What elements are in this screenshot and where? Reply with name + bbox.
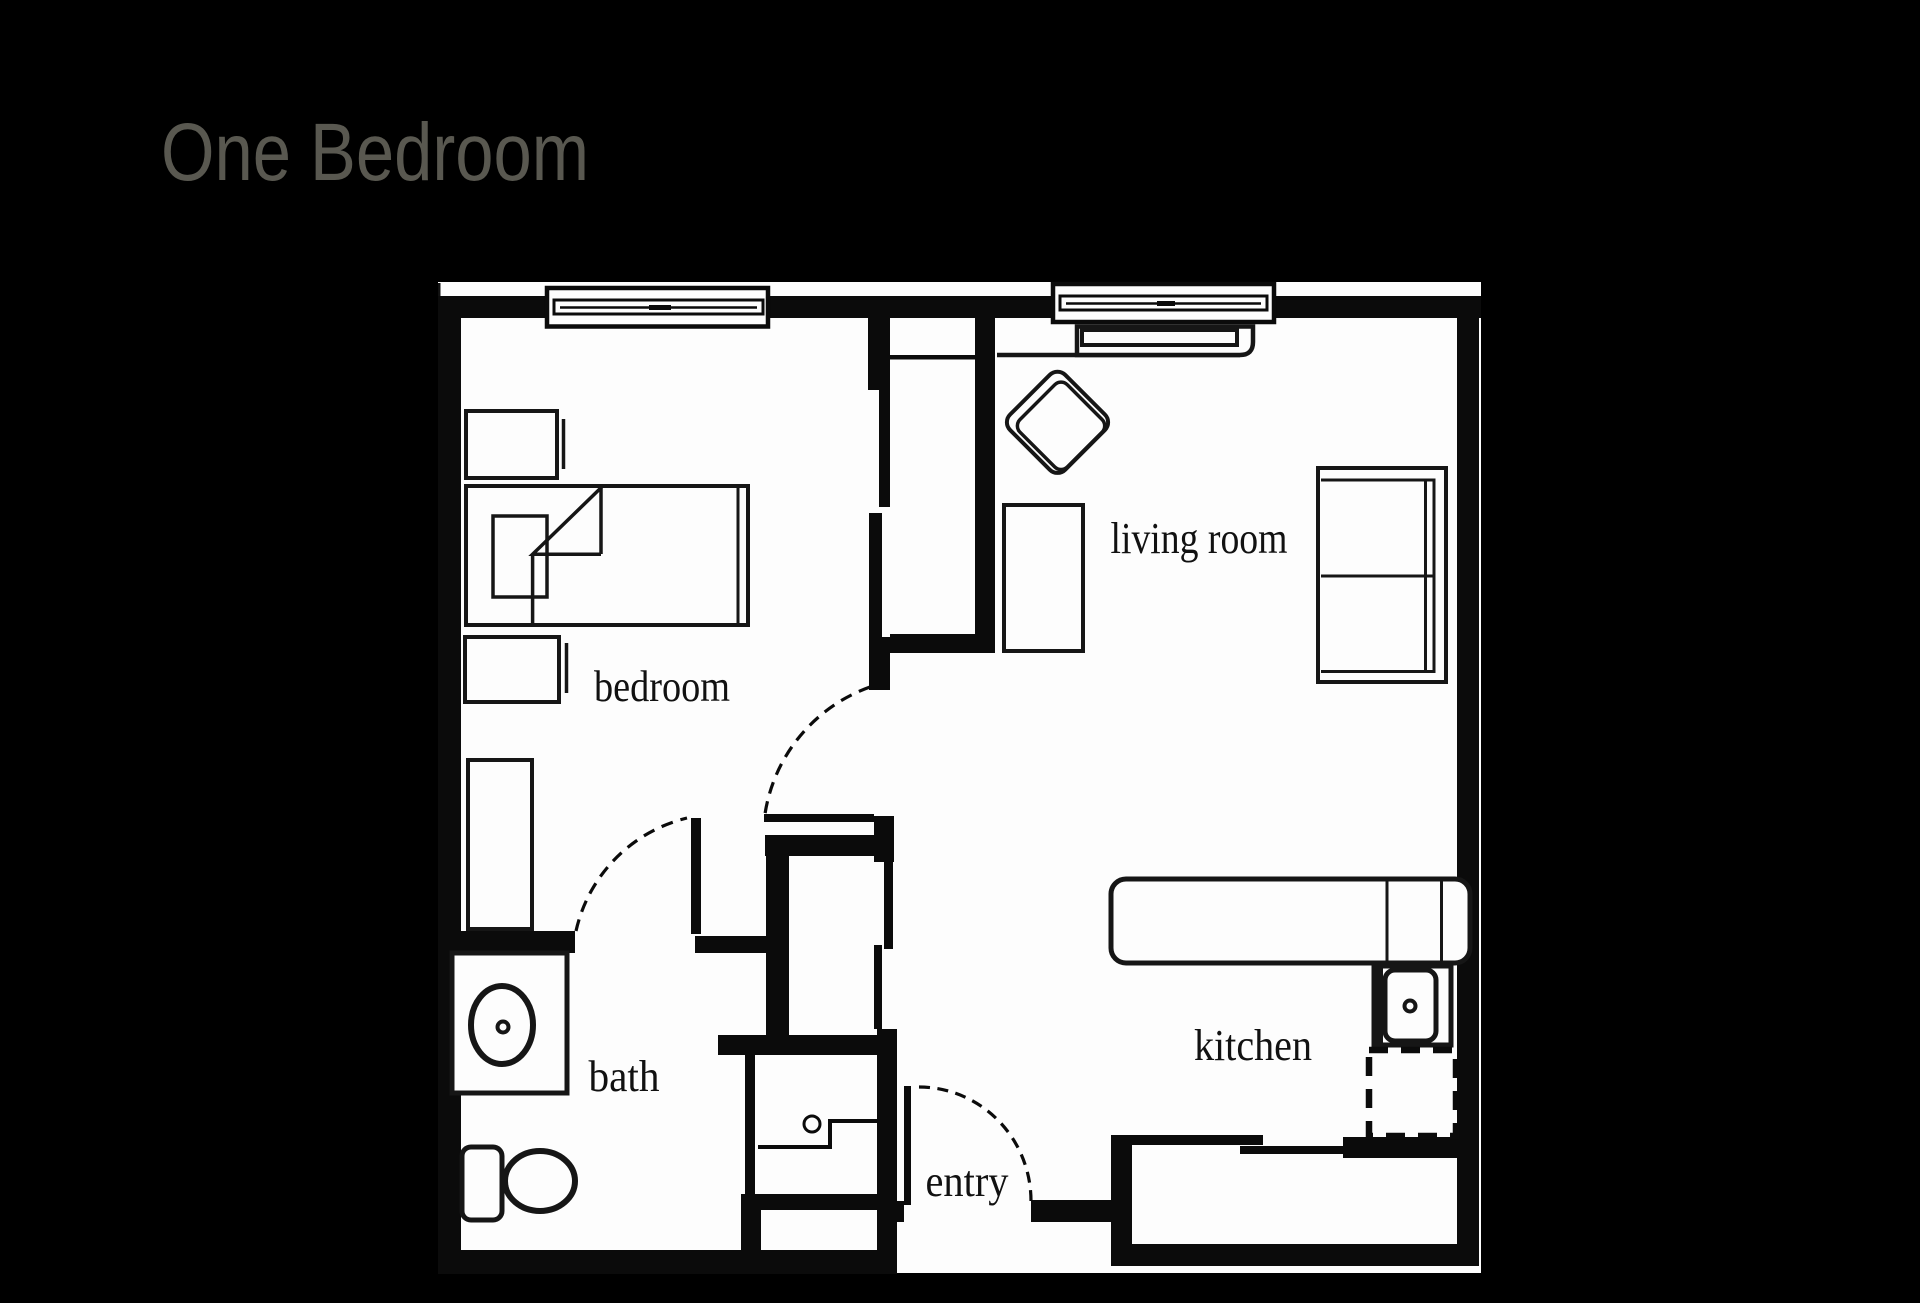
svg-text:living room: living room	[1111, 514, 1288, 563]
svg-text:kitchen: kitchen	[1194, 1021, 1312, 1070]
svg-text:One Bedroom: One Bedroom	[161, 107, 589, 198]
svg-text:bedroom: bedroom	[594, 662, 730, 711]
svg-text:bath: bath	[589, 1052, 660, 1101]
svg-text:entry: entry	[926, 1157, 1009, 1206]
